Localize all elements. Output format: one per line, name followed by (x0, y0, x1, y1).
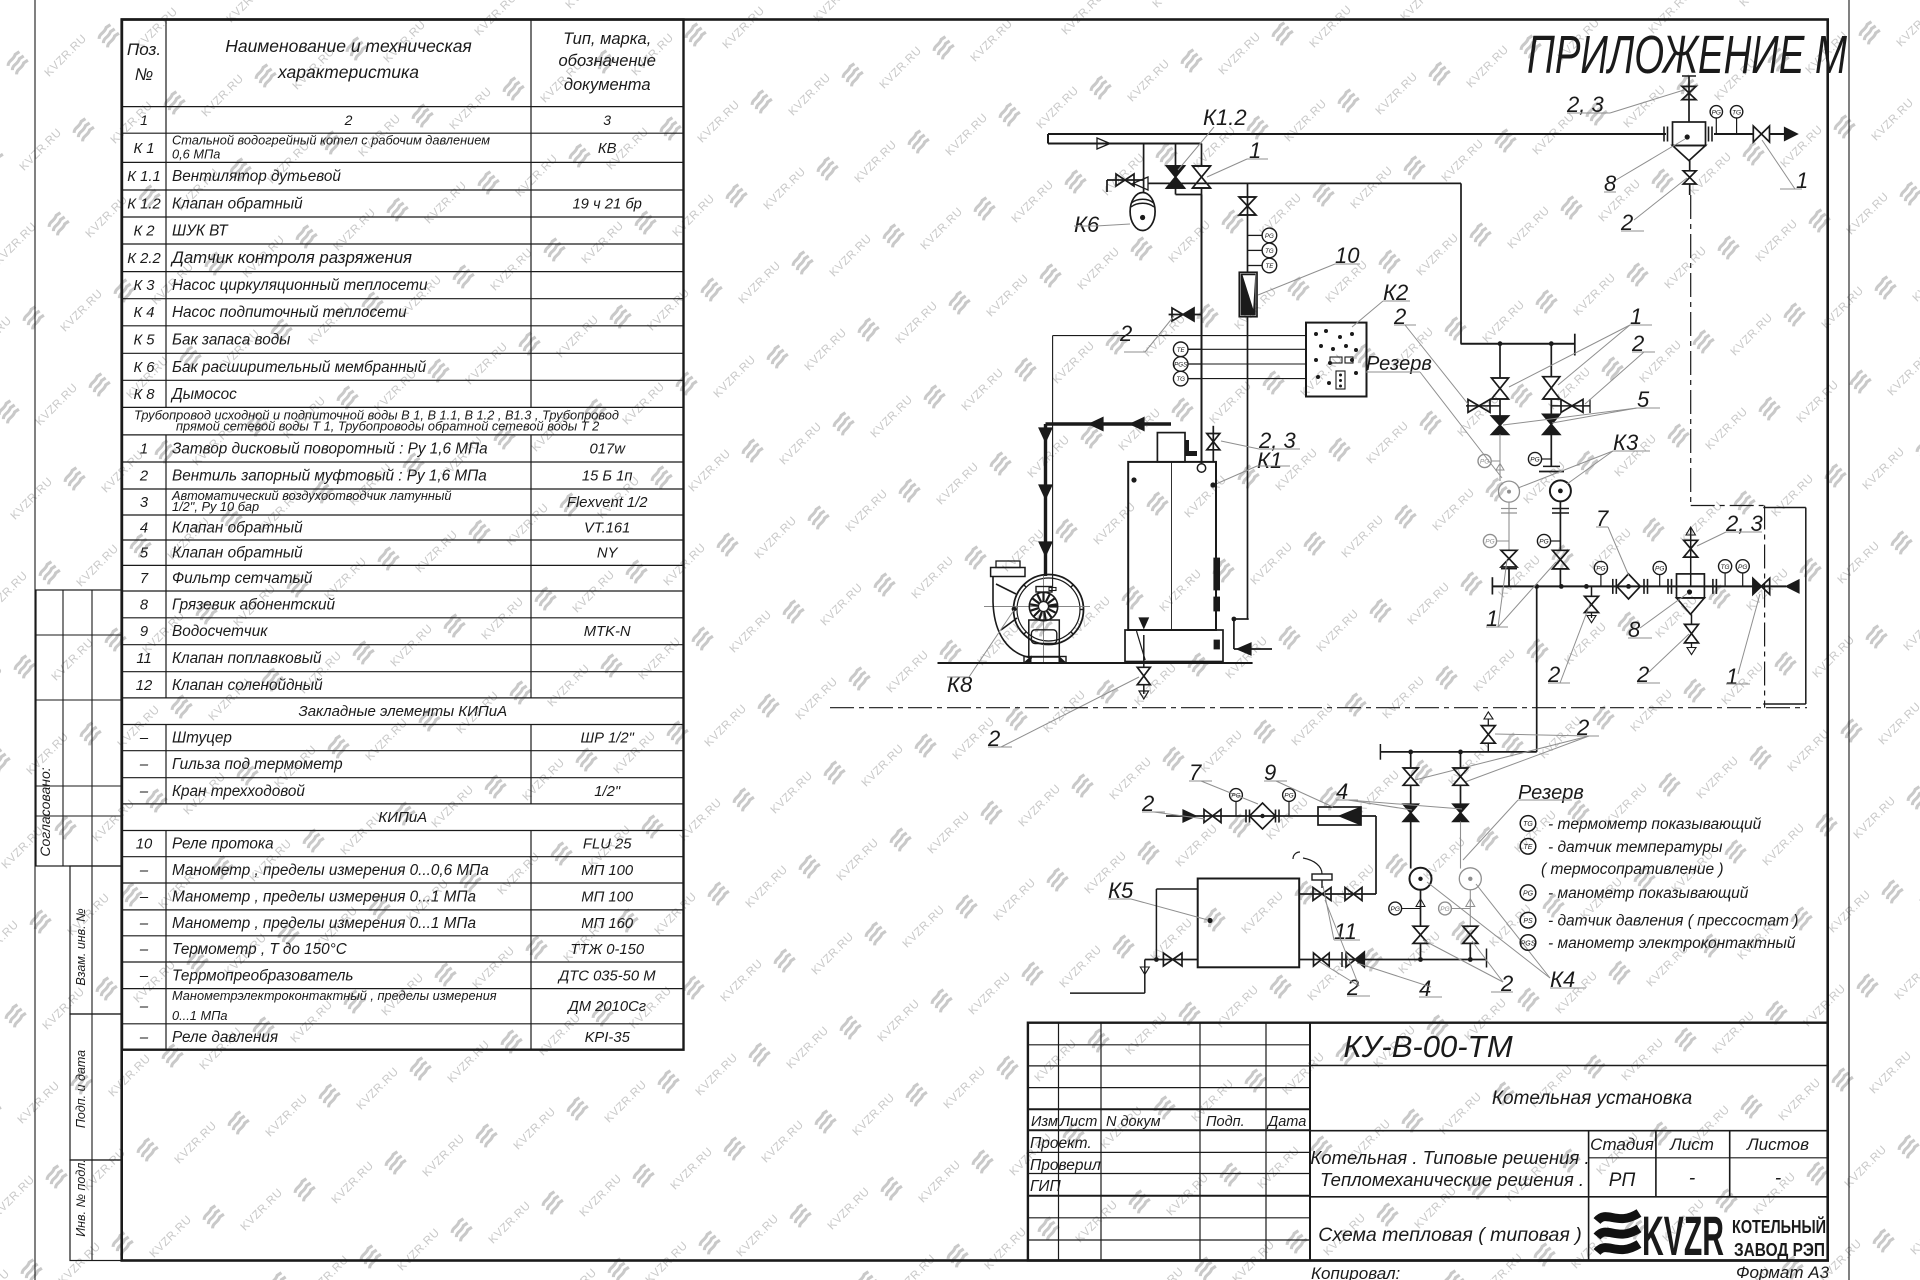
svg-text:PS: PS (1523, 918, 1533, 925)
svg-text:PG: PG (1440, 906, 1449, 913)
svg-text:документа: документа (564, 76, 651, 94)
svg-text:–: – (139, 731, 149, 747)
svg-text:Гильза под термометр: Гильза под термометр (172, 756, 343, 773)
svg-text:PG: PG (1265, 233, 1274, 240)
svg-text:5: 5 (140, 546, 149, 562)
svg-text:Стадия: Стадия (1590, 1135, 1654, 1154)
svg-text:PGS: PGS (1521, 940, 1536, 947)
svg-text:Манометр , пределы измерения: Манометр , пределы измерения 0...1 МПа (172, 915, 476, 932)
svg-text:017w: 017w (590, 441, 627, 457)
svg-text:FLU 25: FLU 25 (583, 837, 632, 853)
svg-text:Манометр , пределы измерения: Манометр , пределы измерения 0...1 МПа (172, 889, 476, 906)
svg-text:Затвор дисковый поворотный :: Затвор дисковый поворотный : Ру 1,6 МПа (172, 440, 488, 457)
svg-text:- манометр электроконтактный: - манометр электроконтактный (1548, 935, 1796, 952)
svg-text:Котельная установка: Котельная установка (1492, 1088, 1692, 1109)
svg-text:15 Б 1п: 15 Б 1п (582, 469, 633, 485)
svg-text:КОТЕЛЬНЫЙ: КОТЕЛЬНЫЙ (1732, 1216, 1826, 1237)
svg-text:PGS: PGS (1174, 362, 1188, 369)
svg-text:3: 3 (140, 495, 149, 511)
svg-text:МП 160: МП 160 (581, 916, 634, 932)
svg-text:N докум: N докум (1106, 1114, 1161, 1130)
svg-text:прямой сетевой воды Т 1,: прямой сетевой воды Т 1, Трубопроводы об… (176, 418, 599, 433)
svg-text:Манометр , пределы измерения: Манометр , пределы измерения 0...0,6 МПа (172, 862, 489, 879)
svg-text:PG: PG (1539, 539, 1548, 546)
svg-text:Проверил: Проверил (1030, 1157, 1101, 1174)
svg-text:19 ч 21 бр: 19 ч 21 бр (572, 197, 641, 213)
svg-text:9: 9 (140, 624, 148, 640)
svg-text:0...1 МПа: 0...1 МПа (172, 1008, 228, 1023)
svg-text:ТG: ТG (1265, 248, 1274, 255)
svg-text:PG: PG (1485, 539, 1494, 546)
svg-text:PG: PG (1655, 566, 1664, 573)
svg-text:1: 1 (140, 441, 148, 457)
svg-text:PG: PG (1390, 906, 1399, 913)
svg-text:Кран трехходовой: Кран трехходовой (172, 783, 305, 800)
svg-text:ГИП: ГИП (1030, 1178, 1062, 1195)
svg-text:Реле протока: Реле протока (172, 836, 274, 853)
svg-text:К 3: К 3 (133, 278, 155, 294)
svg-text:Термометр , Т до 150°С: Термометр , Т до 150°С (172, 941, 348, 958)
svg-text:К8: К8 (947, 672, 973, 697)
svg-text:К 2.2: К 2.2 (127, 251, 161, 267)
svg-text:К 5: К 5 (133, 333, 155, 349)
svg-text:ЗАВОД РЭП: ЗАВОД РЭП (1734, 1240, 1825, 1260)
svg-text:–: – (139, 757, 149, 773)
svg-text:Водосчетчик: Водосчетчик (172, 623, 268, 640)
svg-text:11: 11 (136, 651, 151, 667)
svg-text:Манометрэлектроконтактный , п: Манометрэлектроконтактный , пределы изме… (172, 988, 497, 1003)
svg-text:Вентилятор дутьевой: Вентилятор дутьевой (172, 168, 341, 185)
svg-text:Листов: Листов (1746, 1135, 1809, 1154)
svg-text:ДМ 2010Сг: ДМ 2010Сг (566, 999, 646, 1015)
svg-text:Бак расширительный мембранный: Бак расширительный мембранный (172, 359, 427, 376)
svg-text:РП: РП (1609, 1170, 1636, 1191)
svg-text:8: 8 (140, 597, 149, 613)
svg-text:- датчик температуры: - датчик температуры (1548, 839, 1723, 856)
svg-text:Фильтр сетчатый: Фильтр сетчатый (172, 570, 313, 587)
svg-text:ТG: ТG (1732, 109, 1741, 116)
svg-text:Штуцер: Штуцер (172, 730, 232, 747)
svg-text:ДТС 035-50 М: ДТС 035-50 М (557, 968, 656, 984)
svg-text:Тип, марка,: Тип, марка, (563, 30, 651, 48)
svg-text:-: - (1689, 1168, 1695, 1189)
svg-text:Наименование и техническая: Наименование и техническая (225, 36, 472, 56)
svg-text:Грязевик абонентский: Грязевик абонентский (172, 596, 335, 613)
svg-text:К 1.1: К 1.1 (127, 169, 160, 185)
svg-text:Проект.: Проект. (1030, 1135, 1092, 1152)
svg-text:PG: PG (1738, 564, 1747, 571)
svg-text:1: 1 (1726, 664, 1738, 689)
svg-text:Насос подпиточный теплосети: Насос подпиточный теплосети (172, 304, 407, 321)
svg-text:ТЕ: ТЕ (1265, 263, 1274, 270)
svg-text:Подп.: Подп. (1206, 1114, 1245, 1130)
svg-text:характеристика: характеристика (277, 62, 419, 82)
svg-text:2: 2 (1119, 321, 1132, 346)
svg-text:- термометр показывающий: - термометр показывающий (1548, 816, 1762, 833)
svg-text:Клапан обратный: Клапан обратный (172, 520, 303, 537)
svg-text:К 1.2: К 1.2 (127, 197, 161, 213)
svg-text:3: 3 (603, 112, 611, 128)
svg-text:1: 1 (140, 112, 148, 128)
svg-text:ТG: ТG (1176, 376, 1185, 383)
svg-text:PG: PG (1596, 566, 1605, 573)
svg-text:MTK-N: MTK-N (584, 624, 631, 640)
svg-text:KVZR: KVZR (1642, 1204, 1724, 1267)
svg-text:Взам. инв. №: Взам. инв. № (74, 908, 88, 986)
svg-text:КУ-В-00-ТМ: КУ-В-00-ТМ (1343, 1029, 1512, 1064)
svg-text:2: 2 (139, 469, 149, 485)
svg-text:ШУК ВТ: ШУК ВТ (172, 223, 229, 240)
svg-text:Вентиль запорный муфтовый : Р: Вентиль запорный муфтовый : Ру 1,6 МПа (172, 468, 487, 485)
svg-text:Дата: Дата (1266, 1114, 1306, 1130)
svg-text:–: – (139, 968, 149, 984)
svg-text:( термосопративление ): ( термосопративление ) (1541, 861, 1724, 878)
svg-text:- манометр показывающий: - манометр показывающий (1548, 885, 1749, 902)
svg-text:- датчик давления ( прессост: - датчик давления ( прессостат ) (1548, 913, 1798, 930)
svg-text:–: – (139, 1030, 149, 1046)
svg-text:К 6: К 6 (133, 360, 155, 376)
svg-text:Террмопреобразователь: Террмопреобразователь (172, 967, 353, 984)
svg-text:PG: PG (1284, 793, 1293, 800)
svg-text:Поз.: Поз. (127, 40, 161, 59)
svg-text:ТG: ТG (1721, 564, 1730, 571)
svg-text:12: 12 (136, 678, 153, 694)
svg-text:PG: PG (1530, 457, 1539, 464)
svg-text:К6: К6 (1074, 212, 1100, 237)
svg-text:Лист: Лист (1059, 1114, 1097, 1130)
svg-text:Копировал:: Копировал: (1311, 1264, 1401, 1280)
svg-text:Насос циркуляционный теплосети: Насос циркуляционный теплосети (172, 277, 428, 294)
svg-text:–: – (139, 863, 149, 879)
svg-text:Инв. № подл.: Инв. № подл. (74, 1159, 88, 1237)
svg-text:К 1: К 1 (133, 141, 154, 157)
svg-text:Стальной водогрейный котел с р: Стальной водогрейный котел с рабочим дав… (172, 132, 490, 147)
svg-text:Flexvent 1/2: Flexvent 1/2 (567, 495, 648, 511)
svg-text:Дымосос: Дымосос (170, 386, 237, 403)
svg-text:ПРИЛОЖЕНИЕ М: ПРИЛОЖЕНИЕ М (1527, 25, 1847, 85)
svg-text:Датчик контроля разряжения: Датчик контроля разряжения (170, 248, 412, 267)
svg-text:ТЕ: ТЕ (1177, 347, 1186, 354)
svg-text:Резерв: Резерв (1518, 782, 1584, 804)
svg-text:PG: PG (1712, 109, 1721, 116)
svg-text:10: 10 (136, 837, 153, 853)
svg-text:NY: NY (597, 546, 619, 562)
svg-text:–: – (139, 916, 149, 932)
svg-text:обозначение: обозначение (558, 52, 655, 70)
svg-text:–: – (139, 942, 149, 958)
svg-text:К1.2: К1.2 (1203, 105, 1247, 130)
svg-text:KPI-35: KPI-35 (585, 1030, 631, 1046)
svg-text:МП 100: МП 100 (581, 863, 634, 879)
svg-text:PG: PG (1480, 459, 1489, 466)
svg-text:КИПиА: КИПиА (378, 809, 427, 826)
svg-text:Тепломеханические решения .: Тепломеханические решения . (1320, 1169, 1584, 1190)
svg-text:-: - (1775, 1168, 1781, 1189)
svg-text:МП 100: МП 100 (581, 890, 634, 906)
svg-text:4: 4 (140, 521, 148, 537)
svg-text:ТG: ТG (1523, 821, 1533, 828)
svg-text:VT.161: VT.161 (584, 521, 630, 537)
svg-text:К 8: К 8 (133, 387, 155, 403)
svg-text:Формат А3: Формат А3 (1736, 1263, 1830, 1280)
svg-text:Клапан поплавковый: Клапан поплавковый (172, 650, 322, 667)
svg-text:–: – (139, 784, 149, 800)
svg-text:Реле давления: Реле давления (172, 1029, 278, 1046)
svg-text:ШР 1/2": ШР 1/2" (580, 731, 634, 747)
svg-text:Клапан соленойдный: Клапан соленойдный (172, 677, 323, 694)
svg-text:К 4: К 4 (133, 305, 154, 321)
svg-text:Согласовано:: Согласовано: (37, 767, 53, 856)
svg-text:Подп. и дата: Подп. и дата (74, 1050, 88, 1128)
svg-text:№: № (135, 65, 153, 84)
svg-text:–: – (139, 999, 149, 1015)
svg-text:0,6 МПа: 0,6 МПа (172, 147, 220, 162)
svg-text:ТЕ: ТЕ (1524, 844, 1533, 851)
svg-text:7: 7 (140, 571, 149, 587)
svg-text:1/2", Ру 10 бар: 1/2", Ру 10 бар (172, 499, 259, 514)
svg-text:К1: К1 (1257, 448, 1282, 473)
svg-text:Клапан обратный: Клапан обратный (172, 545, 303, 562)
svg-text:ТТЖ 0-150: ТТЖ 0-150 (570, 942, 645, 958)
svg-text:Изм: Изм (1031, 1114, 1058, 1130)
svg-text:–: – (139, 890, 149, 906)
svg-text:Закладные элементы КИПиА: Закладные элементы КИПиА (299, 703, 508, 720)
svg-text:Лист: Лист (1669, 1135, 1714, 1154)
svg-text:1/2": 1/2" (594, 784, 621, 800)
svg-text:Котельная . Типовые решения .: Котельная . Типовые решения . (1310, 1147, 1589, 1168)
svg-text:PG: PG (1523, 891, 1534, 898)
svg-text:Бак запаса воды: Бак запаса воды (172, 332, 290, 349)
svg-text:К 2: К 2 (133, 224, 155, 240)
svg-text:Схема тепловая ( типовая ): Схема тепловая ( типовая ) (1318, 1224, 1581, 1246)
svg-text:КВ: КВ (598, 141, 617, 157)
svg-text:2: 2 (344, 112, 353, 128)
svg-text:Клапан обратный: Клапан обратный (172, 196, 303, 213)
